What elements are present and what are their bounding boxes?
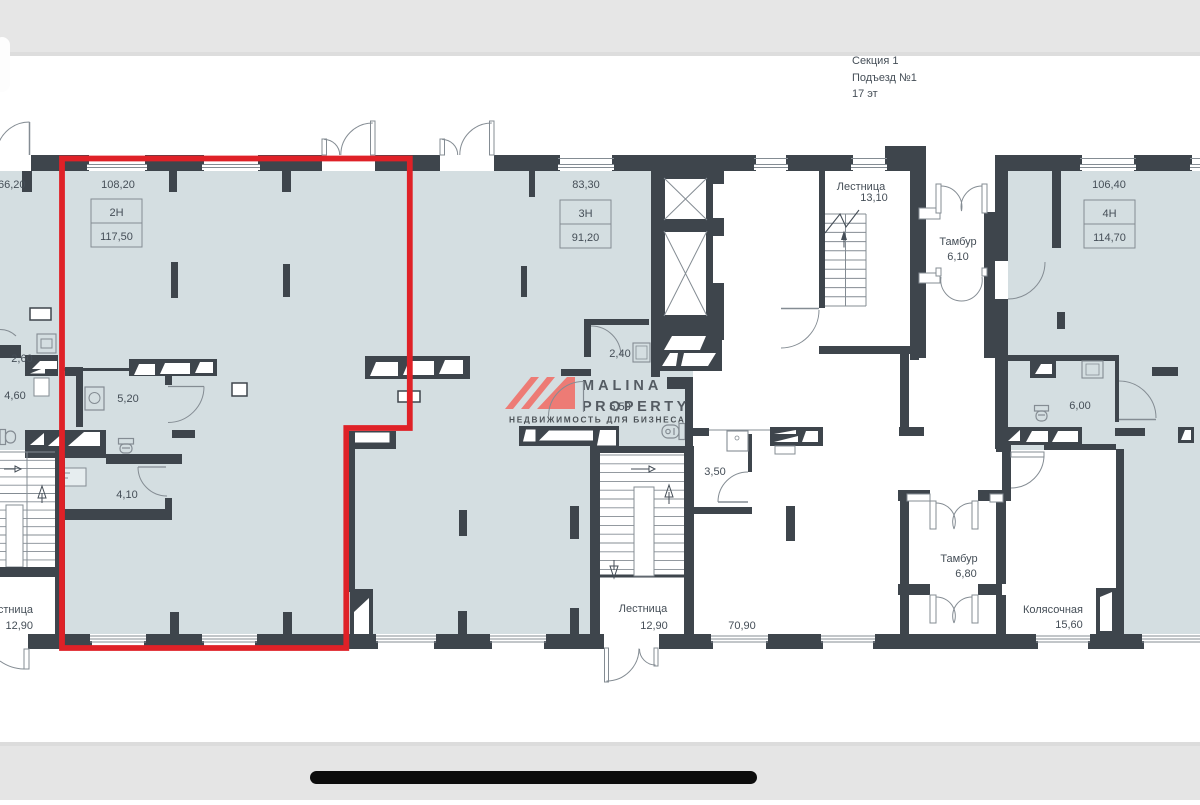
svg-text:4,60: 4,60 [4, 390, 25, 402]
svg-text:12,90: 12,90 [640, 620, 668, 632]
svg-text:Секция 1: Секция 1 [852, 55, 898, 67]
svg-text:12,90: 12,90 [5, 620, 33, 632]
svg-text:Тамбур: Тамбур [939, 236, 976, 248]
svg-text:6,10: 6,10 [947, 251, 968, 263]
svg-text:2,40: 2,40 [609, 348, 630, 360]
svg-text:4,10: 4,10 [116, 489, 137, 501]
svg-text:66,20: 66,20 [0, 179, 26, 191]
svg-text:6,00: 6,00 [1069, 400, 1090, 412]
svg-text:83,30: 83,30 [572, 179, 600, 191]
svg-text:PROPERTY: PROPERTY [582, 399, 690, 415]
svg-text:Подъезд №1: Подъезд №1 [852, 72, 917, 84]
svg-text:MALINA: MALINA [582, 378, 662, 394]
svg-text:91,20: 91,20 [572, 232, 600, 244]
svg-text:106,40: 106,40 [1092, 179, 1126, 191]
svg-text:70,90: 70,90 [728, 620, 756, 632]
svg-text:Лестница: Лестница [0, 604, 34, 616]
svg-text:117,50: 117,50 [100, 231, 133, 243]
svg-text:5,20: 5,20 [117, 393, 138, 405]
svg-text:15,60: 15,60 [1055, 619, 1083, 631]
svg-text:6,80: 6,80 [955, 568, 976, 580]
svg-text:108,20: 108,20 [101, 179, 135, 191]
svg-text:3,50: 3,50 [704, 466, 725, 478]
svg-text:17 эт: 17 эт [852, 88, 878, 100]
svg-text:Тамбур: Тамбур [940, 553, 977, 565]
svg-text:2Н: 2Н [109, 207, 123, 219]
svg-text:4Н: 4Н [1102, 208, 1116, 220]
svg-text:НЕДВИЖИМОСТЬ ДЛЯ БИЗНЕСА: НЕДВИЖИМОСТЬ ДЛЯ БИЗНЕСА [509, 415, 686, 425]
svg-text:114,70: 114,70 [1093, 232, 1126, 244]
svg-text:13,10: 13,10 [860, 192, 888, 204]
svg-text:Лестница: Лестница [619, 603, 668, 615]
svg-text:Колясочная: Колясочная [1023, 604, 1083, 616]
svg-text:3Н: 3Н [578, 208, 592, 220]
svg-text:2,60: 2,60 [11, 353, 32, 365]
